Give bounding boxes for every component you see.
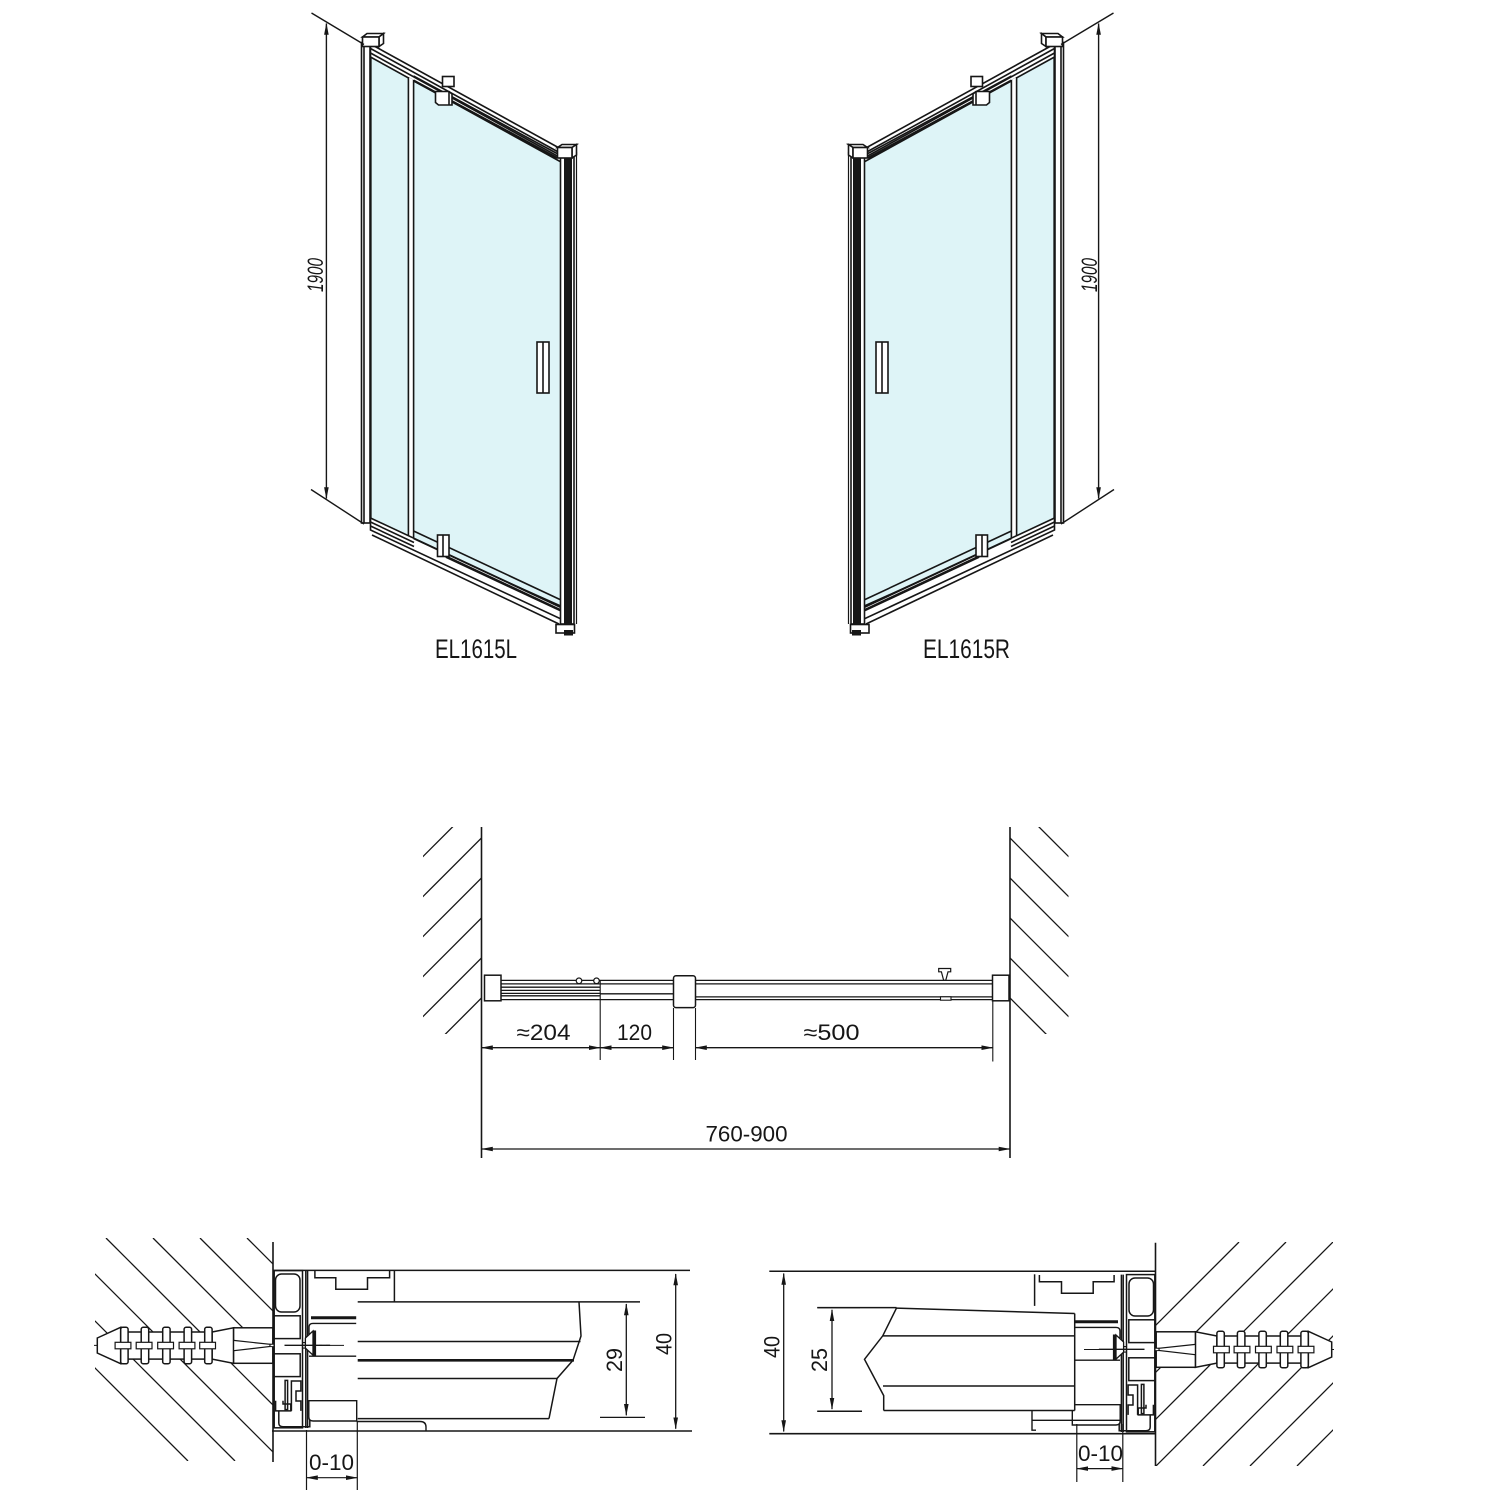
- svg-text:1900: 1900: [303, 257, 328, 292]
- svg-text:40: 40: [760, 1336, 785, 1358]
- svg-text:0-10: 0-10: [1078, 1441, 1123, 1466]
- svg-text:EL1615R: EL1615R: [923, 634, 1010, 664]
- svg-text:1900: 1900: [1077, 257, 1102, 292]
- svg-text:120: 120: [617, 1020, 652, 1045]
- svg-text:EL1615L: EL1615L: [435, 634, 517, 664]
- svg-text:40: 40: [652, 1333, 677, 1355]
- svg-text:≈500: ≈500: [804, 1020, 860, 1045]
- svg-text:25: 25: [807, 1348, 832, 1372]
- svg-text:≈204: ≈204: [517, 1020, 571, 1045]
- svg-text:0-10: 0-10: [309, 1450, 354, 1475]
- svg-text:760-900: 760-900: [706, 1122, 788, 1147]
- svg-text:29: 29: [602, 1348, 627, 1372]
